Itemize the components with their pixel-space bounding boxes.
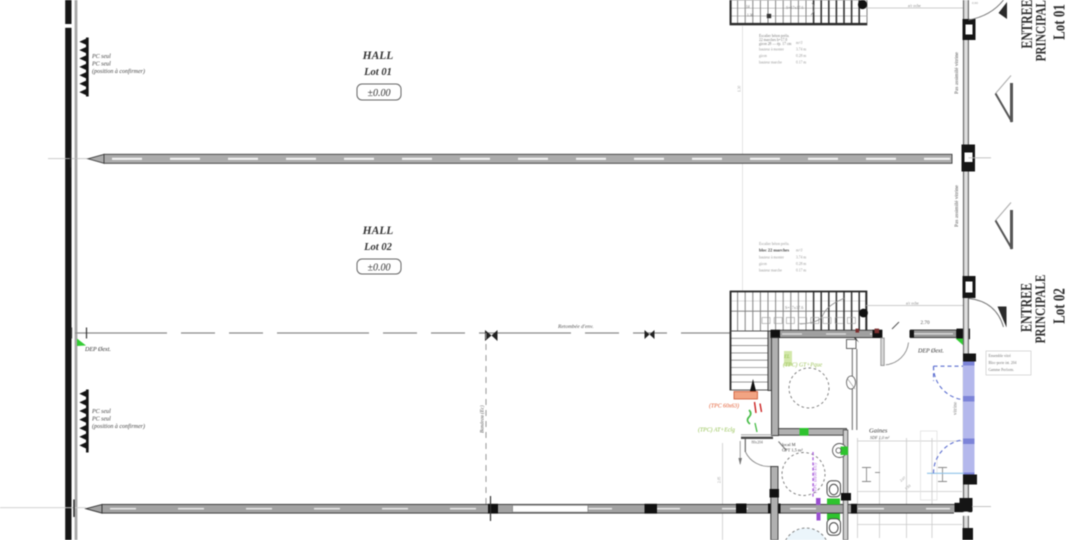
- svg-text:PC seul: PC seul: [91, 417, 111, 423]
- svg-text:80x204: 80x204: [752, 441, 763, 445]
- svg-text:bloc 22 marches: bloc 22 marches: [759, 248, 789, 253]
- svg-text:3.74 m: 3.74 m: [796, 256, 806, 260]
- svg-text:Escalier béton préfa.: Escalier béton préfa.: [759, 242, 789, 246]
- svg-text:HALL: HALL: [362, 50, 394, 62]
- svg-text:1.30: 1.30: [738, 86, 742, 92]
- svg-text:m²/J: m²/J: [796, 249, 803, 253]
- svg-text:Ensemble vitré: Ensemble vitré: [989, 354, 1012, 358]
- svg-text:a/r oche: a/r oche: [906, 301, 919, 306]
- svg-text:Lot 01: Lot 01: [363, 67, 392, 78]
- svg-text:PC seul: PC seul: [91, 409, 111, 415]
- svg-text:hauteur marche: hauteur marche: [759, 61, 782, 65]
- svg-text:(position à confirmer): (position à confirmer): [92, 423, 145, 430]
- svg-text:(TPC Ø100 EU): (TPC Ø100 EU): [813, 462, 818, 493]
- svg-text:(position à confirmer): (position à confirmer): [92, 68, 145, 75]
- svg-text:hauteur marche: hauteur marche: [759, 269, 782, 273]
- svg-text:Gaines: Gaines: [869, 428, 888, 435]
- svg-text:PRINCIPALE: PRINCIPALE: [1032, 0, 1049, 61]
- svg-text:(TPC) GT+Pque: (TPC) GT+Pque: [783, 362, 823, 369]
- svg-text:14: 14: [746, 5, 750, 9]
- svg-text:hauteur à monter: hauteur à monter: [759, 256, 785, 260]
- svg-text:vitrine: vitrine: [954, 401, 959, 415]
- svg-text:PRINCIPALE: PRINCIPALE: [1031, 274, 1048, 343]
- svg-text:Pas assimilé vitrine: Pas assimilé vitrine: [954, 184, 960, 227]
- svg-text:0.17 m: 0.17 m: [796, 269, 806, 273]
- svg-text:2.05: 2.05: [718, 477, 722, 483]
- svg-text:a/r oche: a/r oche: [908, 3, 921, 8]
- svg-text:1.30: 1.30: [747, 14, 753, 18]
- svg-text:PC seul: PC seul: [91, 54, 111, 60]
- svg-text:Bloc-porte int. 204: Bloc-porte int. 204: [989, 361, 1017, 365]
- svg-text:giron 28 — ép. 17 cm: giron 28 — ép. 17 cm: [759, 42, 791, 46]
- svg-text:EL: EL: [783, 355, 790, 360]
- svg-text:DEP Øext.: DEP Øext.: [84, 347, 111, 353]
- svg-text:Lot 02: Lot 02: [1051, 288, 1069, 324]
- svg-text:±0.00: ±0.00: [368, 88, 391, 99]
- svg-text:DEP Øext.: DEP Øext.: [917, 349, 944, 355]
- svg-text:hauteur à monter: hauteur à monter: [759, 48, 785, 52]
- svg-text:Retombée d'env.: Retombée d'env.: [557, 324, 594, 330]
- svg-text:S=17x17.6: S=17x17.6: [785, 305, 803, 310]
- svg-text:giron: giron: [759, 262, 767, 266]
- svg-text:HALL: HALL: [362, 225, 394, 237]
- svg-text:(TPC) AT+Eclg: (TPC) AT+Eclg: [698, 427, 735, 434]
- svg-text:0.90: 0.90: [972, 1, 978, 5]
- svg-text:0.28 m: 0.28 m: [796, 262, 806, 266]
- svg-text:Lot 01: Lot 01: [1051, 4, 1069, 40]
- svg-text:PC seul: PC seul: [91, 62, 111, 68]
- svg-text:0.28 m: 0.28 m: [796, 54, 806, 58]
- svg-text:local M: local M: [782, 442, 796, 447]
- svg-text:0.17 m: 0.17 m: [796, 61, 806, 65]
- svg-text:Gamme Perform.: Gamme Perform.: [989, 368, 1015, 372]
- svg-text:(TPC 60x63): (TPC 60x63): [709, 403, 739, 410]
- svg-text:S=17x17.6: S=17x17.6: [786, 5, 803, 10]
- svg-text:3.74 m: 3.74 m: [796, 48, 806, 52]
- svg-text:giron: giron: [759, 54, 767, 58]
- svg-text:±0.00: ±0.00: [368, 263, 391, 274]
- svg-text:m²/J: m²/J: [796, 41, 803, 45]
- svg-text:2.70: 2.70: [921, 320, 930, 326]
- svg-text:Bandeau (Ec): Bandeau (Ec): [481, 405, 486, 433]
- svg-text:Pas assimilé vitrine: Pas assimilé vitrine: [954, 51, 960, 94]
- svg-text:Lot 02: Lot 02: [363, 242, 392, 253]
